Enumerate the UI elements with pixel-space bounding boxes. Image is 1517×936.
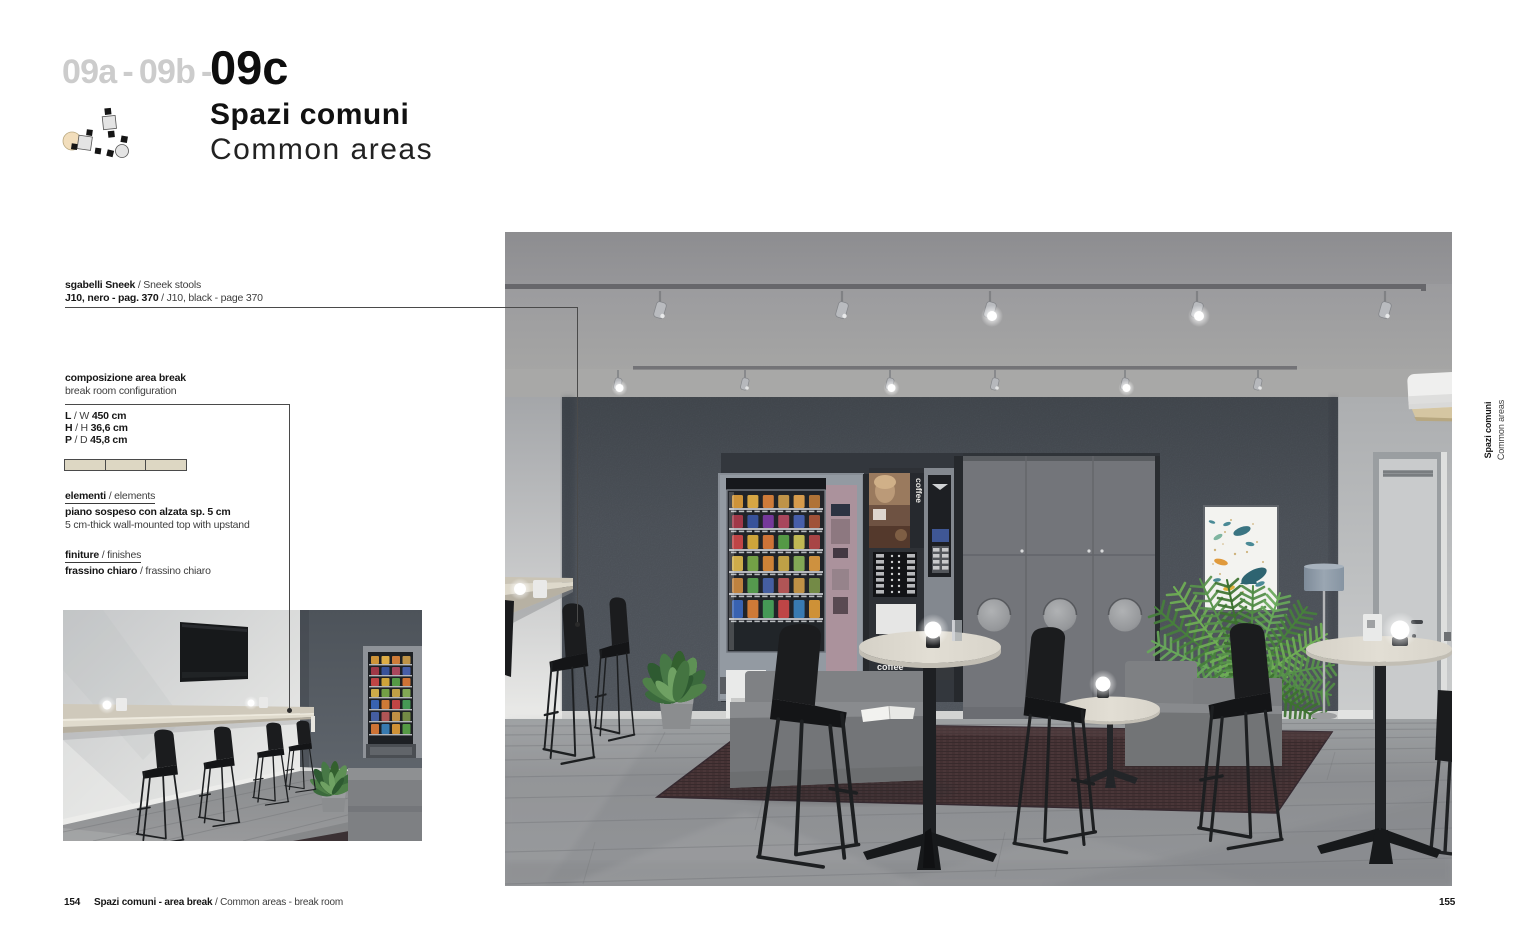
svg-text:coffee: coffee <box>914 478 924 503</box>
